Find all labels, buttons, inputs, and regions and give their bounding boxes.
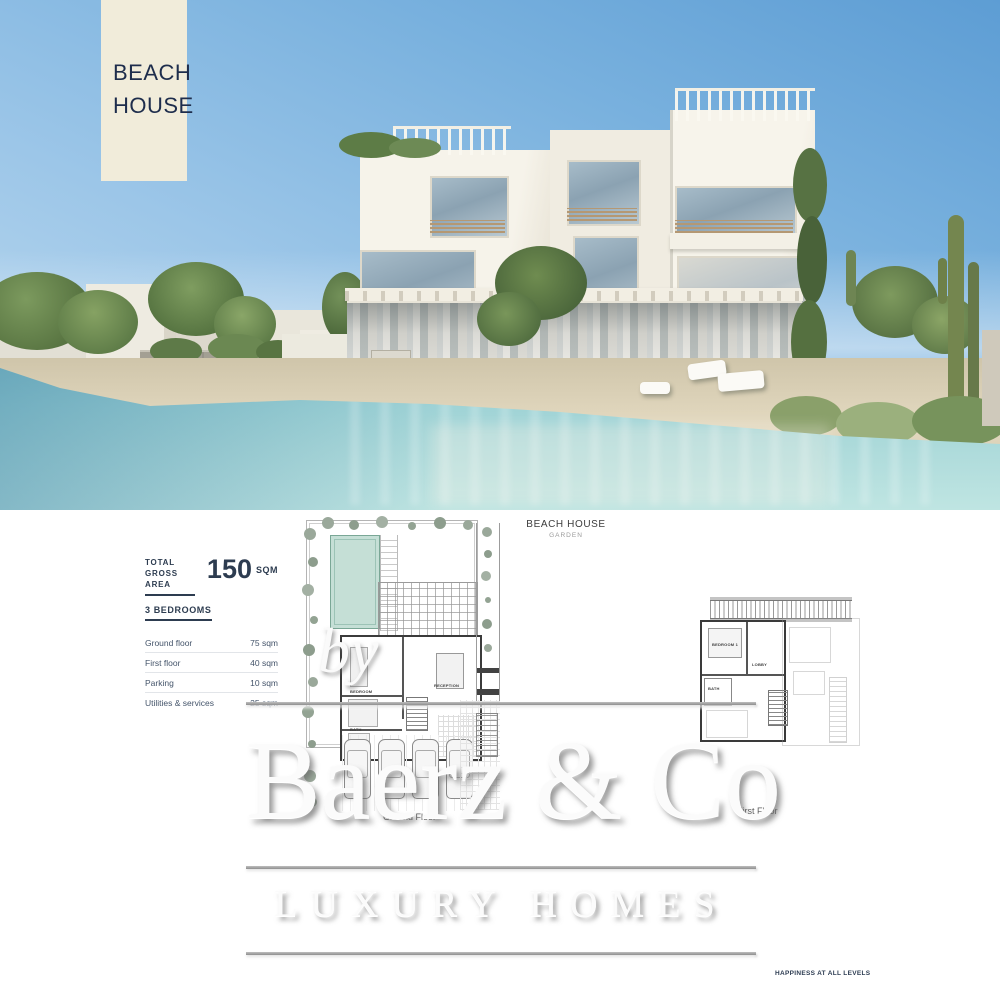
total-area-value: 150 [207, 557, 252, 581]
roof-pergola [710, 600, 852, 619]
hedge-trees [482, 527, 492, 537]
row-label: Parking [145, 678, 174, 688]
total-area-label: TOTAL GROSS AREA [145, 557, 195, 596]
cactus-arm [938, 258, 947, 304]
table-row: Parking 10 sqm [145, 673, 278, 693]
pergola-deck [378, 582, 478, 638]
banner-line2: HOUSE [113, 89, 187, 122]
plan-header: BEACH HOUSE GARDEN [486, 519, 646, 539]
car [412, 739, 439, 799]
row-value: 40 sqm [250, 658, 278, 668]
area-table: Ground floor 75 sqm First floor 40 sqm P… [145, 633, 278, 712]
watermark-tagline: LUXURY HOMES [246, 882, 756, 926]
beach-house-banner: BEACH HOUSE [101, 0, 187, 181]
main-building [345, 88, 815, 403]
balcony-parapet [670, 233, 800, 249]
car [378, 739, 405, 799]
side-garden-strip [476, 523, 500, 701]
table-row: Ground floor 75 sqm [145, 633, 278, 653]
external-stairs [476, 713, 498, 757]
row-label: Utilities & services [145, 698, 214, 708]
room-label: BEDROOM 1 [712, 642, 738, 647]
cactus [846, 250, 856, 306]
row-value: 25 sqm [250, 698, 278, 708]
roof-shrub [389, 138, 441, 158]
sofa [350, 647, 368, 687]
garden-trees-left [304, 528, 316, 540]
area-info-panel: TOTAL GROSS AREA 150 SQM 3 BEDROOMS Grou… [145, 557, 278, 712]
row-value: 10 sqm [250, 678, 278, 688]
ground-floor-plan: RECEPTION BEDROOM BATH [306, 520, 502, 812]
garden-trees-top [322, 517, 334, 529]
first-floor-label: First Floor [737, 806, 778, 816]
first-floor-plan: BEDROOM 1 LOBBY BATH [692, 598, 858, 748]
stone-pillar [982, 330, 1000, 426]
hero-photo: BEACH HOUSE [0, 0, 1000, 510]
roof-terrace-faded [782, 618, 860, 746]
total-area-heading: TOTAL GROSS AREA 150 SQM [145, 557, 278, 596]
wood-balcony-rail [430, 220, 505, 233]
total-area-unit: SQM [256, 565, 278, 575]
row-label: Ground floor [145, 638, 192, 648]
room-label: BATH [350, 727, 362, 732]
bedrooms-label: 3 BEDROOMS [145, 605, 212, 621]
room-label: BATH [708, 686, 720, 691]
wood-balcony-rail [675, 220, 793, 233]
parking-area [342, 735, 478, 811]
roof-pergola-right [675, 88, 815, 121]
wood-balcony-rail [567, 208, 637, 221]
room-label: RECEPTION [434, 683, 459, 688]
watermark-rule [246, 866, 756, 869]
watermark-rule [246, 952, 756, 955]
stairs [406, 697, 428, 731]
table-row: First floor 40 sqm [145, 653, 278, 673]
banner-line1: BEACH [113, 56, 187, 89]
plan-title: BEACH HOUSE [486, 519, 646, 530]
room-label: LOBBY [752, 662, 767, 667]
plan-subtitle: GARDEN [486, 532, 646, 539]
car [344, 739, 371, 799]
building-reflection [430, 425, 830, 505]
footer-tagline: HAPPINESS AT ALL LEVELS [775, 970, 870, 977]
table-row: Utilities & services 25 sqm [145, 693, 278, 712]
pool [330, 535, 380, 629]
room-label: BEDROOM [350, 689, 372, 694]
bed [706, 710, 748, 738]
bed [348, 699, 378, 727]
ground-floor-label: Ground Floor [383, 812, 436, 822]
row-label: First floor [145, 658, 180, 668]
row-value: 75 sqm [250, 638, 278, 648]
bath-fixture [704, 678, 732, 706]
brochure-page: BEACH HOUSE BEACH HOUSE GARDEN TOTAL GRO… [0, 0, 1000, 1000]
